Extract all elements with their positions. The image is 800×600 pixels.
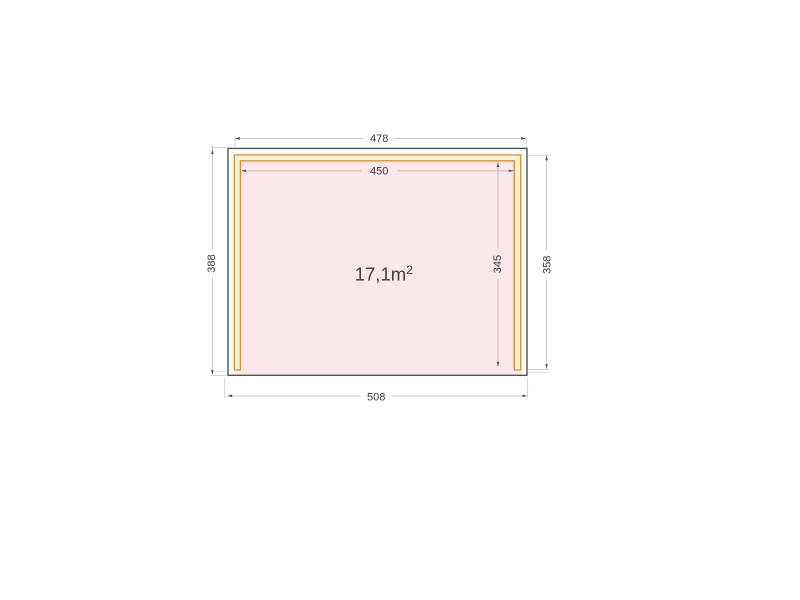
svg-text:17,1m2: 17,1m2 (355, 263, 413, 284)
svg-text:388: 388 (206, 254, 218, 272)
svg-text:345: 345 (492, 255, 504, 273)
svg-text:358: 358 (541, 256, 553, 274)
svg-text:508: 508 (367, 392, 385, 404)
svg-text:478: 478 (370, 133, 388, 145)
svg-text:450: 450 (370, 166, 388, 178)
